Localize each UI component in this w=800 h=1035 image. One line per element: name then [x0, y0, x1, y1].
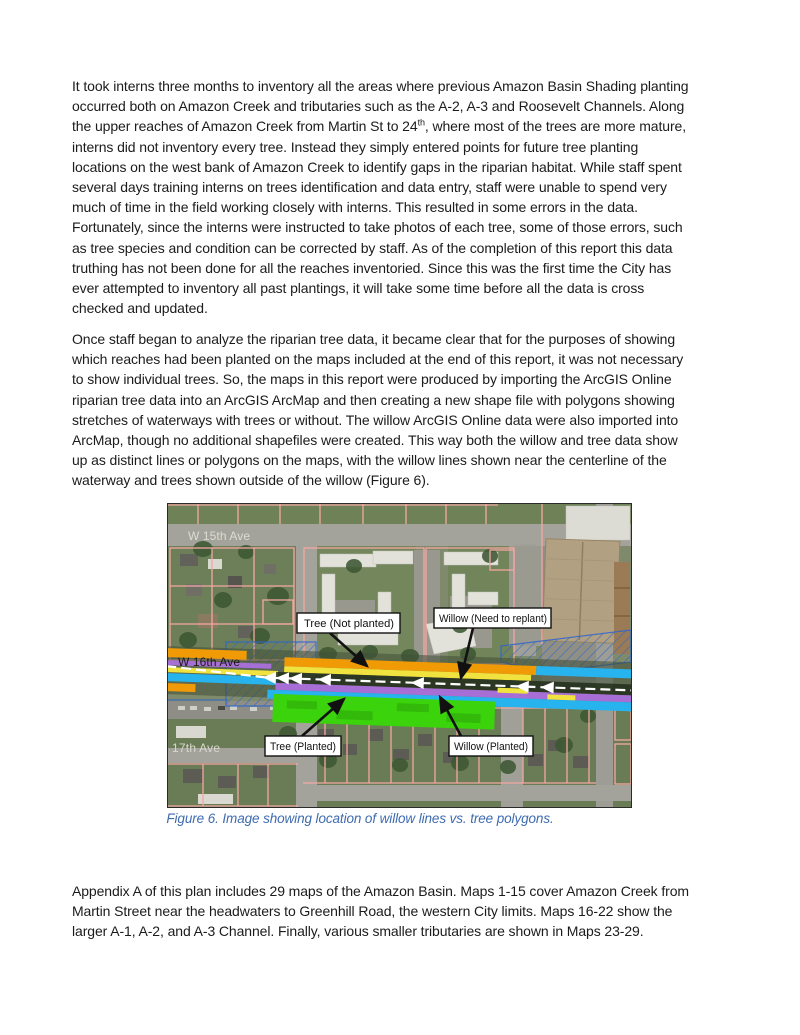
- figure-caption: Figure 6. Image showing location of will…: [72, 811, 648, 826]
- aerial-map-image: W 15th Ave W 16th Ave 17th Ave Tree (Not…: [167, 503, 632, 808]
- text-line: ever attempted to inventory all past pla…: [72, 278, 740, 298]
- callout-willow-need-replant: Willow (Need to replant): [439, 613, 547, 625]
- text-line: several days training interns on trees i…: [72, 177, 740, 197]
- text-line: It took interns three months to inventor…: [72, 76, 740, 96]
- callout-willow-planted: Willow (Planted): [454, 741, 528, 753]
- document-page: It took interns three months to inventor…: [0, 0, 800, 1035]
- text-line: checked and updated.: [72, 298, 740, 318]
- callout-tree-planted: Tree (Planted): [270, 741, 336, 753]
- text-line: waterway and trees shown outside of the …: [72, 470, 740, 490]
- text-line: Once staff began to analyze the riparian…: [72, 329, 740, 349]
- text-line: which reaches had been planted on the ma…: [72, 349, 740, 369]
- text-line: truthing has not been done for all the r…: [72, 258, 740, 278]
- text-line: the upper reaches of Amazon Creek from M…: [72, 116, 740, 136]
- text-line: locations on the west bank of Amazon Cre…: [72, 157, 740, 177]
- text-line: Appendix A of this plan includes 29 maps…: [72, 881, 740, 901]
- callout-tree-not-planted: Tree (Not planted): [304, 618, 394, 630]
- figure-6-map: W 15th Ave W 16th Ave 17th Ave Tree (Not…: [167, 503, 632, 808]
- text-line: riparian tree data into an ArcGIS ArcMap…: [72, 390, 740, 410]
- text-line: interns did not inventory every tree. In…: [72, 137, 740, 157]
- street-label-w15th: W 15th Ave: [188, 529, 250, 543]
- text-line: much of time in the field working closel…: [72, 197, 740, 217]
- text-line: Martin Street near the headwaters to Gre…: [72, 901, 740, 921]
- street-label-w16th: W 16th Ave: [178, 655, 240, 669]
- text-line: larger A-1, A-2, and A-3 Channel. Finall…: [72, 921, 740, 941]
- text-line: to show individual trees. So, the maps i…: [72, 369, 740, 389]
- paragraph-2: Once staff began to analyze the riparian…: [72, 329, 740, 491]
- text-line: stretches of waterways with trees or wit…: [72, 410, 740, 430]
- text-line: up as distinct lines or polygons on the …: [72, 450, 740, 470]
- street-label-17th: 17th Ave: [172, 741, 220, 755]
- text-line: occurred both on Amazon Creek and tribut…: [72, 96, 740, 116]
- text-line: Fortunately, since the interns were inst…: [72, 217, 740, 237]
- paragraph-3: Appendix A of this plan includes 29 maps…: [72, 881, 740, 942]
- text-line: as tree species and condition can be cor…: [72, 238, 740, 258]
- text-line: ArcMap, though no additional shapefiles …: [72, 430, 740, 450]
- paragraph-1: It took interns three months to inventor…: [72, 76, 740, 318]
